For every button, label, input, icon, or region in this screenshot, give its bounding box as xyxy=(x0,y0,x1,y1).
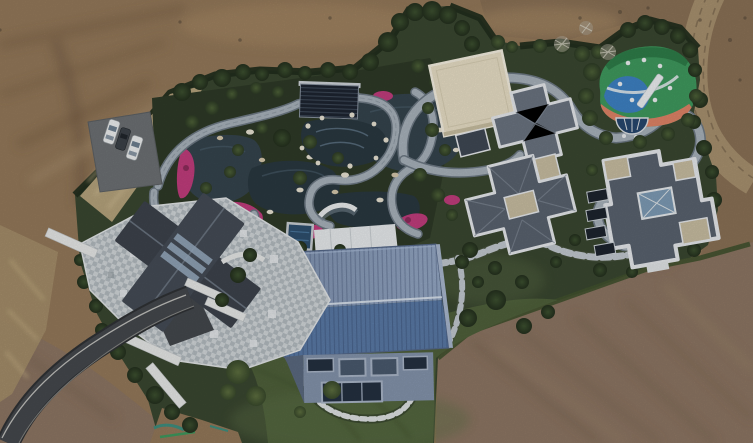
aerial-estate-photo xyxy=(0,0,753,443)
aerial-photo-stage xyxy=(0,0,753,443)
photo-grain xyxy=(0,0,753,443)
